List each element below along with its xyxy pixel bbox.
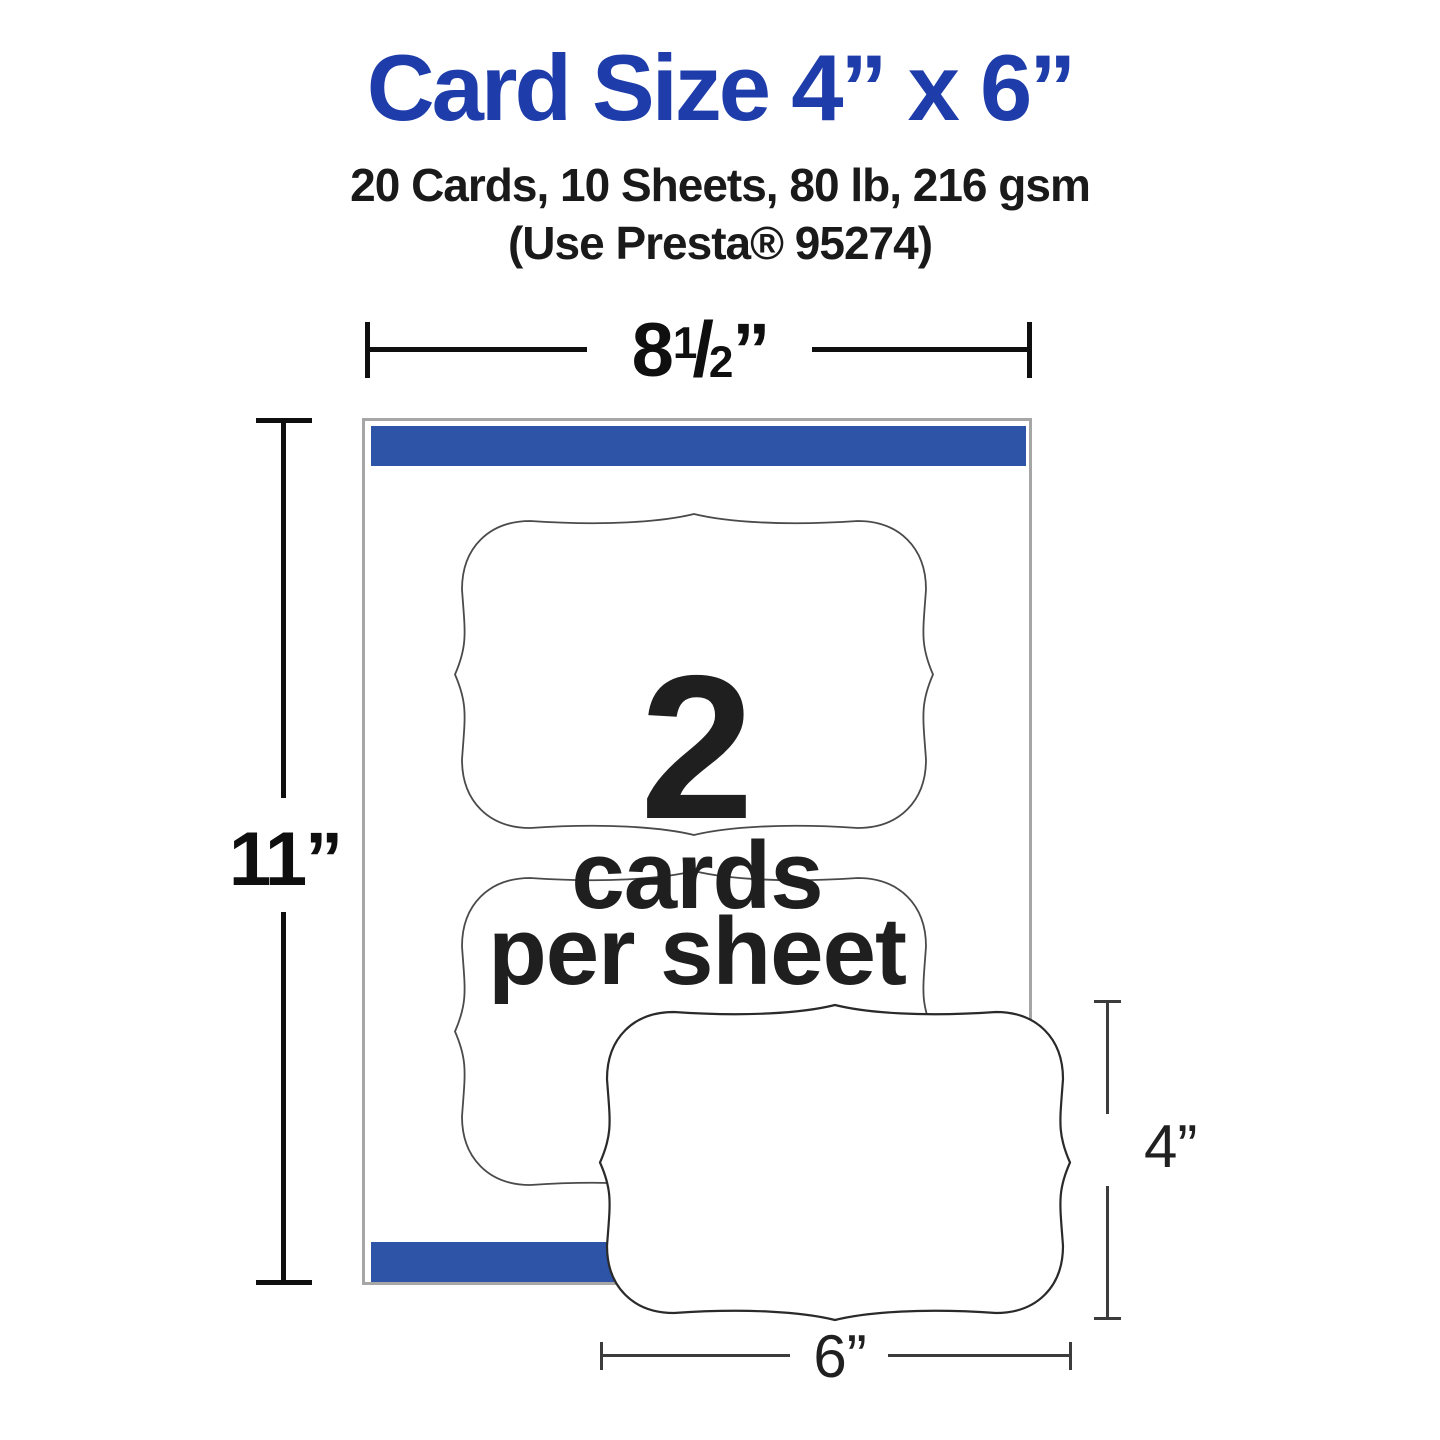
sheet-height-dim-cap-bottom xyxy=(256,1280,312,1285)
card-width-label: 6” xyxy=(813,1322,866,1391)
sheet-height-label: 11” xyxy=(229,816,341,903)
card-height-dim-line-lower xyxy=(1106,1186,1109,1320)
sheet-height-dim-line-upper xyxy=(281,418,286,798)
subtitle-line-2: (Use Presta® 95274) xyxy=(508,216,932,270)
card-height-dim-line-upper xyxy=(1106,1000,1109,1114)
card-width-dim-line-left xyxy=(600,1354,790,1357)
card-height-dim-cap-bottom xyxy=(1094,1317,1121,1320)
page-title: Card Size 4” x 6” xyxy=(367,34,1074,142)
product-diagram: Card Size 4” x 6” 20 Cards, 10 Sheets, 8… xyxy=(0,0,1440,1440)
card-height-label: 4” xyxy=(1144,1112,1197,1181)
sheet-width-label: 81/2” xyxy=(632,306,769,395)
card-width-dim-line-right xyxy=(888,1354,1072,1357)
cards-per-sheet-number: 2 xyxy=(640,645,754,850)
sheet-width-dim-cap-right xyxy=(1027,322,1032,378)
sheet-height-dim-line-lower xyxy=(281,912,286,1285)
sheet-width-dim-line-left xyxy=(365,347,587,352)
sheet-footer-bar xyxy=(371,1242,1026,1282)
sheet-header-bar xyxy=(371,426,1026,466)
card-width-dim-cap-right xyxy=(1069,1342,1072,1370)
count-text-line-2: per sheet xyxy=(488,914,906,990)
sheet-width-fraction: 1/2 xyxy=(672,308,733,393)
sheet-width-unit: ” xyxy=(732,308,768,393)
subtitle-line-1: 20 Cards, 10 Sheets, 80 lb, 216 gsm xyxy=(350,158,1090,212)
sheet-width-whole: 8 xyxy=(632,308,672,393)
cards-per-sheet-text: cards per sheet xyxy=(488,838,906,990)
sheet-width-denominator: 2 xyxy=(709,338,732,387)
sheet-width-dim-line-right xyxy=(812,347,1032,352)
